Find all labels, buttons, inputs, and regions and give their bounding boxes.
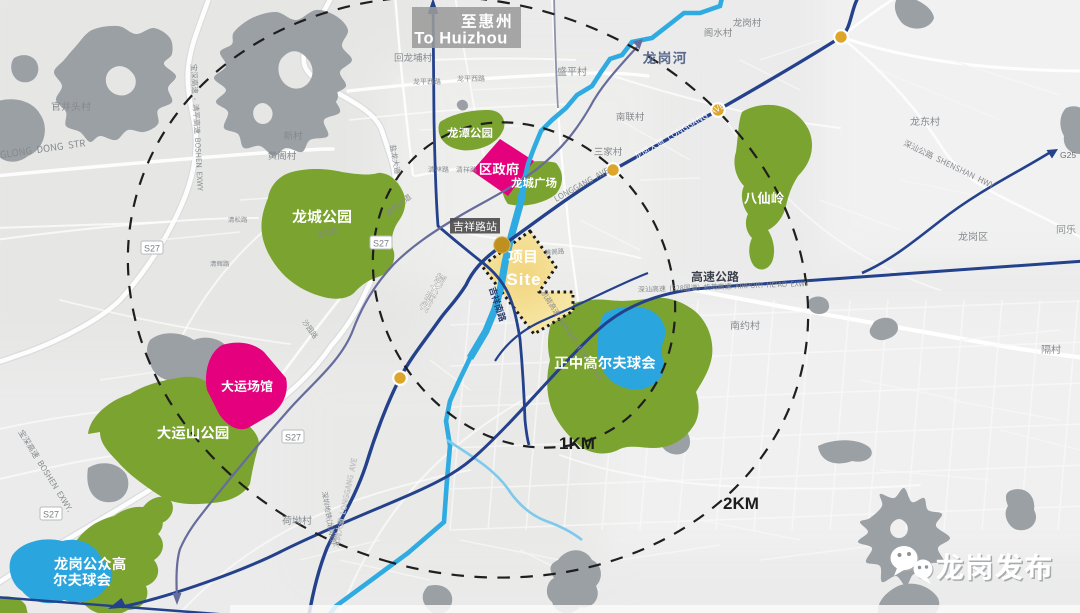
svg-text:S27: S27 <box>373 239 389 249</box>
svg-text:S27: S27 <box>144 244 160 254</box>
svg-text:S27: S27 <box>43 510 59 520</box>
svg-text:S27: S27 <box>285 433 301 443</box>
svg-text:Site: Site <box>506 270 541 289</box>
svg-text:1KM: 1KM <box>559 434 595 453</box>
svg-text:G25: G25 <box>1060 150 1076 160</box>
svg-text:2KM: 2KM <box>723 494 759 513</box>
svg-text:To Huizhou: To Huizhou <box>414 30 508 48</box>
